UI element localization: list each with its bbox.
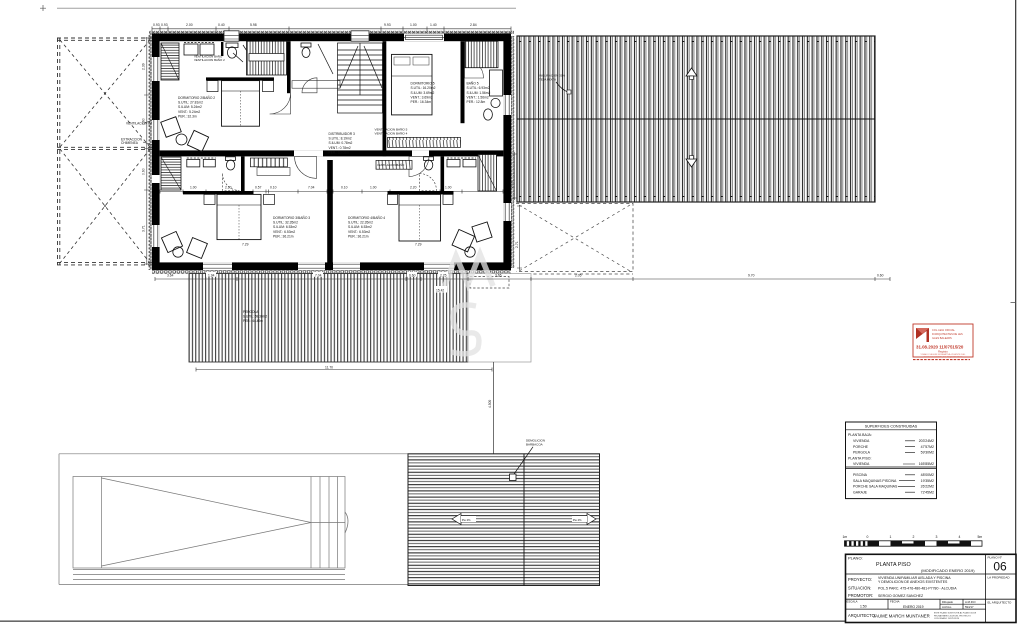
svg-text:PER.: 32.3m: PER.: 32.3m [178,114,197,118]
svg-text:SUPERFICIES CONSTRUIDAS: SUPERFICIES CONSTRUIDAS [865,425,918,429]
svg-text:165'85M2: 165'85M2 [919,462,934,466]
svg-text:Pte 2%: Pte 2% [573,518,582,522]
svg-text:15.42: 15.42 [436,289,444,293]
svg-text:2.39: 2.39 [142,63,146,70]
svg-text:COLEGIO OFICIAL DE ARQUITECTOS: COLEGIO OFICIAL DE ARQUITECTOS [924,356,963,359]
svg-text:PER.: 36.21m: PER.: 36.21m [348,234,369,238]
svg-text:GARAJE: GARAJE [853,490,868,494]
svg-text:3.64: 3.64 [167,273,174,277]
svg-text:ILLES BALEARS: ILLES BALEARS [932,336,952,340]
svg-text:DORMITORIO 3/BAÑO 3: DORMITORIO 3/BAÑO 3 [273,215,310,220]
svg-text:ARQUITECTO:: ARQUITECTO: [848,613,876,618]
svg-text:1:50: 1:50 [860,605,867,609]
svg-text:S.UTIL: 6.93m2: S.UTIL: 6.93m2 [467,86,490,90]
svg-text:2.05: 2.05 [575,273,582,277]
svg-text:S.ILUM: 6.53m2: S.ILUM: 6.53m2 [273,225,297,229]
svg-text:SITUACION:: SITUACION: [848,586,871,591]
svg-text:48'00M2: 48'00M2 [921,473,934,477]
svg-text:19'35M2: 19'35M2 [921,479,934,483]
svg-text:06: 06 [993,560,1007,574]
svg-text:4: 4 [959,535,961,539]
svg-text:0.57: 0.57 [255,186,262,190]
svg-text:CHIMENEA: CHIMENEA [121,141,139,145]
svg-text:PLANTA BAJA:: PLANTA BAJA: [848,433,872,437]
svg-text:1.00: 1.00 [190,186,197,190]
svg-text:4.500: 4.500 [488,400,492,408]
svg-text:7.29: 7.29 [242,243,249,247]
svg-text:Dibujado: Dibujado [942,600,953,604]
svg-text:594/17: 594/17 [965,605,974,609]
svg-text:VENT.: 5.24m2: VENT.: 5.24m2 [178,110,200,114]
svg-text:CON VISADO 11/07515/20: CON VISADO 11/07515/20 [934,617,960,620]
svg-text:DORMITORIO 4/BAÑO 4: DORMITORIO 4/BAÑO 4 [348,215,385,220]
svg-text:Archivo: Archivo [942,605,952,609]
svg-text:Y DEMOLICION DE ANEXOS EXISTEN: Y DEMOLICION DE ANEXOS EXISTENTES [878,580,948,584]
svg-text:DORMITORIO 5: DORMITORIO 5 [411,82,435,86]
svg-text:SERGIO GOMEZ SANCHEZ: SERGIO GOMEZ SANCHEZ [878,594,924,598]
svg-text:7.04: 7.04 [315,273,322,277]
svg-text:31.08.2020 11/07515/20: 31.08.2020 11/07515/20 [916,345,964,350]
svg-text:2.05: 2.05 [510,181,514,188]
svg-text:9.93: 9.93 [384,23,391,27]
svg-text:3.65: 3.65 [495,273,502,277]
svg-text:1.00: 1.00 [410,23,417,27]
svg-text:0.10: 0.10 [270,186,277,190]
svg-text:7.29: 7.29 [415,243,422,247]
svg-text:VENT.: 1.56m2: VENT.: 1.56m2 [467,95,489,99]
svg-text:PORCHE SALA MAQUINAS: PORCHE SALA MAQUINAS [853,485,898,489]
svg-text:EL ARQUITECTO: EL ARQUITECTO [988,601,1013,605]
svg-text:PISCINA: PISCINA [853,473,868,477]
svg-text:PLANTA PISO: PLANTA PISO [876,562,911,568]
svg-text:7.04: 7.04 [308,186,315,190]
svg-text:PLANO:: PLANO: [848,556,863,561]
svg-text:BAÑO 5: BAÑO 5 [467,81,479,86]
svg-text:VIVIENDA: VIVIENDA [853,462,870,466]
svg-text:0.93: 0.93 [161,23,168,27]
svg-text:S.ILUM: 1.56m2: S.ILUM: 1.56m2 [467,91,491,95]
svg-text:203'24M2: 203'24M2 [919,439,934,443]
svg-text:TEJA MIXTA: TEJA MIXTA [539,78,556,82]
svg-text:1.00: 1.00 [445,186,452,190]
svg-text:DISTRIBUIDOR 3: DISTRIBUIDOR 3 [329,132,356,136]
svg-text:PROYECTO:: PROYECTO: [848,577,872,582]
svg-text:S.UTIL: 59.30m2: S.UTIL: 59.30m2 [243,315,267,319]
svg-text:SALA MAQUINAS PISCINA: SALA MAQUINAS PISCINA [853,479,897,483]
svg-text:VENT.: 6.53m2: VENT.: 6.53m2 [273,230,295,234]
svg-text:VIVIENDA: VIVIENDA [853,439,870,443]
svg-text:PER.: 13.02m: PER.: 13.02m [329,150,350,154]
svg-text:LA PROPIEDAD: LA PROPIEDAD [988,576,1011,580]
svg-text:S.UTIL: 32.35m2: S.UTIL: 32.35m2 [273,221,298,225]
svg-text:FECHA: FECHA [890,600,900,604]
svg-text:VENTILACION BAÑO: VENTILACION BAÑO [377,162,405,167]
svg-text:2.20: 2.20 [410,186,417,190]
svg-text:VENT.: 3.69m2: VENT.: 3.69m2 [411,95,433,99]
svg-text:PORCHE: PORCHE [853,445,869,449]
svg-text:PER.: 44.40m: PER.: 44.40m [243,319,263,323]
svg-text:1.60: 1.60 [142,118,146,125]
svg-text:0.60: 0.60 [409,273,416,277]
svg-text:PLANTA PISO:: PLANTA PISO: [848,456,871,460]
svg-text:S.UTIL: 27.81m2: S.UTIL: 27.81m2 [178,101,203,105]
svg-text:VENT.: 0.78m2: VENT.: 0.78m2 [329,146,351,150]
svg-text:2.20: 2.20 [225,186,232,190]
svg-text:PERGOLA: PERGOLA [853,451,871,455]
svg-text:47'57M2: 47'57M2 [921,445,934,449]
svg-text:1.00: 1.00 [370,186,377,190]
svg-text:S.ILUM: 0.78m2: S.ILUM: 0.78m2 [329,141,353,145]
svg-text:Registro: Registro [938,350,948,354]
svg-text:2: 2 [913,535,915,539]
svg-text:26'22M2: 26'22M2 [921,485,934,489]
svg-text:S.ILUM: 3.69m2: S.ILUM: 3.69m2 [411,91,435,95]
svg-text:2.25: 2.25 [440,273,447,277]
svg-text:0.93: 0.93 [153,23,160,27]
svg-text:1m: 1m [843,535,848,539]
svg-text:S.UTIL: 8.19m2: S.UTIL: 8.19m2 [329,137,352,141]
svg-text:JAUME MARCH MUNTANER: JAUME MARCH MUNTANER [873,613,930,618]
svg-text:1.40: 1.40 [430,23,437,27]
svg-text:FECHA ENERO 2019 DEL PROYECTO: FECHA ENERO 2019 DEL PROYECTO [934,614,971,617]
svg-text:COL·LEGI OFICIAL: COL·LEGI OFICIAL [932,328,955,332]
svg-text:ESCALA: ESCALA [847,600,858,604]
svg-text:(MODIFICADO ENERO 2019): (MODIFICADO ENERO 2019) [921,568,975,573]
svg-text:59'30M2: 59'30M2 [921,451,934,455]
svg-text:BARBACOA: BARBACOA [526,443,543,447]
svg-text:ESTE PLANO SUSTITUYE AL PLANO: ESTE PLANO SUSTITUYE AL PLANO 06 DE [934,612,977,615]
svg-text:0.10: 0.10 [341,186,348,190]
svg-text:A.M.R.D: A.M.R.D [965,600,976,604]
svg-text:VENT.: 6.53m2: VENT.: 6.53m2 [348,230,370,234]
svg-text:PERGOLA: PERGOLA [243,310,259,314]
svg-text:5.98: 5.98 [250,23,257,27]
svg-text:2.71: 2.71 [515,241,519,248]
svg-text:S.ILUM: 6.53m2: S.ILUM: 6.53m2 [348,225,372,229]
svg-text:S.UTIL: 22.35m2: S.UTIL: 22.35m2 [348,221,373,225]
svg-text:S.UTIL: 16.20m2: S.UTIL: 16.20m2 [411,86,436,90]
svg-text:POL.5 PARC. 475-476-480-481-P7: POL.5 PARC. 475-476-480-481-P7780 - ALCU… [878,587,957,591]
svg-text:0.60: 0.60 [142,168,146,175]
svg-text:PER.: 36.21m: PER.: 36.21m [273,234,294,238]
svg-text:72'45M2: 72'45M2 [921,490,934,494]
svg-text:0.40: 0.40 [218,23,225,27]
svg-text:S.ILUM: 5.24m2: S.ILUM: 5.24m2 [178,105,202,109]
svg-text:11.70: 11.70 [325,366,333,370]
svg-text:0.60: 0.60 [877,273,884,277]
svg-text:VENTILACION BAÑO 2: VENTILACION BAÑO 2 [194,57,225,62]
svg-text:5m: 5m [978,535,983,539]
svg-text:1.94: 1.94 [208,273,215,277]
svg-text:VENTILACION BAÑO 4: VENTILACION BAÑO 4 [375,130,408,135]
svg-text:DORMITORIO 2/BAÑO 2: DORMITORIO 2/BAÑO 2 [178,95,215,100]
svg-text:2.84: 2.84 [470,23,477,27]
svg-text:0: 0 [867,535,869,539]
svg-text:9.70: 9.70 [748,273,755,277]
svg-text:3: 3 [936,535,938,539]
svg-text:PROMOTOR:: PROMOTOR: [848,593,873,598]
svg-text:2.00: 2.00 [186,23,193,27]
svg-text:ENERO 2019: ENERO 2019 [903,605,924,609]
svg-text:3.71: 3.71 [142,225,146,232]
svg-text:PER.: 12.8m: PER.: 12.8m [467,100,486,104]
svg-text:D'ARQUITECTES DE LES: D'ARQUITECTES DE LES [932,332,963,336]
svg-text:1: 1 [890,535,892,539]
svg-text:PER.: 16.34m: PER.: 16.34m [411,100,432,104]
svg-text:Pte 2%: Pte 2% [462,518,471,522]
